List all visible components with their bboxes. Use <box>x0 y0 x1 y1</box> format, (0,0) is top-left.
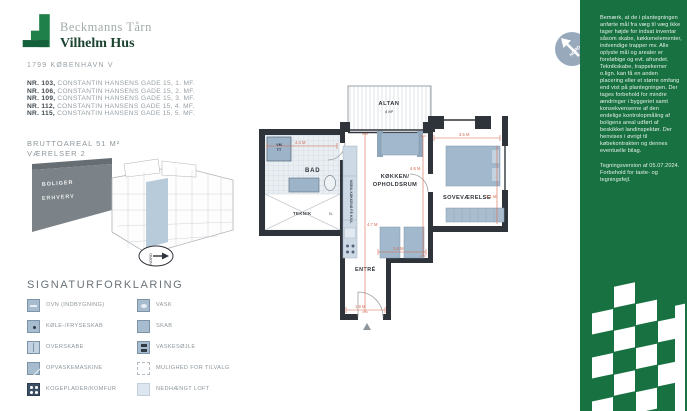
kitchen-unit: MOBIL KØKKENØ PÅ HJUL <box>343 146 357 258</box>
washer-dryer-column-icon <box>137 341 150 354</box>
floorplan-sheet: { "brand": { "project": "Beckmanns Tårn"… <box>0 0 687 411</box>
dim-bath-width: 4.4 M <box>295 140 306 145</box>
suspended-ceiling-icon <box>137 383 150 396</box>
dim-bedroom-width: 3.5 M <box>459 132 470 137</box>
fridge-freezer-icon <box>27 320 40 333</box>
facts-block: BRUTTOAREAL 51 M² VÆRELSER 2 <box>27 139 120 159</box>
site-plan-illustration: BOLIGER ERHVERV NORD <box>28 158 243 270</box>
beckmanns-taarn-logo-icon <box>18 13 58 53</box>
balcony-area-label: 4 M² <box>385 109 394 114</box>
toilet <box>325 176 336 191</box>
disclaimer-text: Bemærk, at de i plantegningen anførte må… <box>600 15 682 155</box>
sink-icon <box>137 299 150 312</box>
kitchen-note-label: MOBIL KØKKENØ PÅ HJUL <box>349 180 354 223</box>
wardrobe <box>446 208 504 222</box>
kitchen-living-label-2: OPHOLDSRUM <box>373 182 417 188</box>
dim-dining: 1.8 M <box>393 246 404 251</box>
highlighted-unit-column <box>146 178 168 248</box>
entrance-marker-icon <box>363 323 371 330</box>
living-room: KØKKEN/ OPHOLDSRUM <box>373 131 424 258</box>
unit-row: NR. 112,CONSTANTIN HANSENS GADE 15, 4. M… <box>27 103 195 111</box>
teknik-label: TEKNIK <box>293 211 312 216</box>
legend-item: VASKESØJLE <box>137 337 233 358</box>
legend-item: NEDHÆNGT LOFT <box>137 379 233 400</box>
dim-living-height: 4.7 M <box>367 222 378 227</box>
dim-living-width: 4.6 M <box>410 166 421 171</box>
pillow <box>492 150 499 163</box>
site-north-indicator: NORD <box>139 246 173 266</box>
kitchen-living-label-1: KØKKEN/ <box>381 174 410 180</box>
unit-row: NR. 103,CONSTANTIN HANSENS GADE 15, 1. M… <box>27 80 195 88</box>
legend-column-right: VASK SKAB VASKESØJLE MULIGHED FOR TILVAL… <box>137 295 233 400</box>
legend-title: SIGNATURFORKLARING <box>27 279 183 291</box>
optional-upgrade-icon <box>137 362 150 375</box>
kitchen-sink <box>345 228 356 238</box>
dining-table <box>380 227 400 258</box>
bedroom-label: SOVEVÆRELSE <box>443 195 491 201</box>
hob-stove-icon <box>27 383 40 396</box>
legend-item: SKAB <box>137 316 233 337</box>
legend-item: KØLE-/FRYSESKAB <box>27 316 123 337</box>
site-north-label: NORD <box>148 253 153 265</box>
legend-item: OVN (INDBYGNING) <box>27 295 123 316</box>
gross-area: BRUTTOAREAL 51 M² <box>27 139 120 149</box>
unit-row: NR. 106,CONSTANTIN HANSENS GADE 15, 2. M… <box>27 88 195 96</box>
brand-block: Beckmanns Tårn Vilhelm Hus <box>60 20 152 52</box>
vm-label: VM <box>276 143 281 147</box>
drawing-version-text: Tegningsversion af 05.07.2024. Forbehold… <box>600 163 682 184</box>
dishwasher-icon <box>27 362 40 375</box>
disclaimer-block: Bemærk, at de i plantegningen anførte må… <box>600 15 682 184</box>
closet-icon <box>137 320 150 333</box>
bedroom: SOVEVÆRELSE <box>443 146 504 222</box>
legend-item: MULIGHED FOR TILVALG <box>137 358 233 379</box>
postal-code: 1799 KØBENHAVN V <box>27 62 114 69</box>
unit-row: NR. 109,CONSTANTIN HANSENS GADE 15, 3. M… <box>27 95 195 103</box>
dim-entry-width: 1.9 M <box>355 304 366 309</box>
building-name: Vilhelm Hus <box>60 36 152 52</box>
dining-bench <box>404 227 424 258</box>
balcony-label: ALTAN <box>378 101 399 107</box>
balcony: ALTAN 4 M² <box>348 86 431 130</box>
project-name: Beckmanns Tårn <box>60 20 152 35</box>
sidebar: Bemærk, at de i plantegningen anførte må… <box>580 0 687 411</box>
bed <box>446 146 500 186</box>
sofa <box>381 133 419 155</box>
dim-bedroom-height: 2.1 M <box>486 194 497 199</box>
wall-cabinet-icon <box>27 341 40 354</box>
legend-column-left: OVN (INDBYGNING) KØLE-/FRYSESKAB OVERSKA… <box>27 295 123 400</box>
brand-flag-pattern <box>580 278 687 411</box>
legend-item: OVERSKABE <box>27 337 123 358</box>
el-label: EL <box>329 212 333 216</box>
legend-item: OPVASKEMASKINE <box>27 358 123 379</box>
legend: OVN (INDBYGNING) KØLE-/FRYSESKAB OVERSKA… <box>27 295 233 400</box>
bathroom-vanity <box>289 178 319 192</box>
bathroom-label: BAD <box>305 168 320 174</box>
apartment-floorplan: ALTAN 4 M² <box>253 80 558 340</box>
oven-icon <box>27 299 40 312</box>
legend-item: VASK <box>137 295 233 316</box>
entry-label: ENTRÉ <box>355 265 376 273</box>
unit-row: NR. 115,CONSTANTIN HANSENS GADE 15, 5. M… <box>27 110 195 118</box>
unit-list: NR. 103,CONSTANTIN HANSENS GADE 15, 1. M… <box>27 80 195 118</box>
pillow <box>492 168 499 181</box>
legend-item: KOGEPLADER/KOMFUR <box>27 379 123 400</box>
